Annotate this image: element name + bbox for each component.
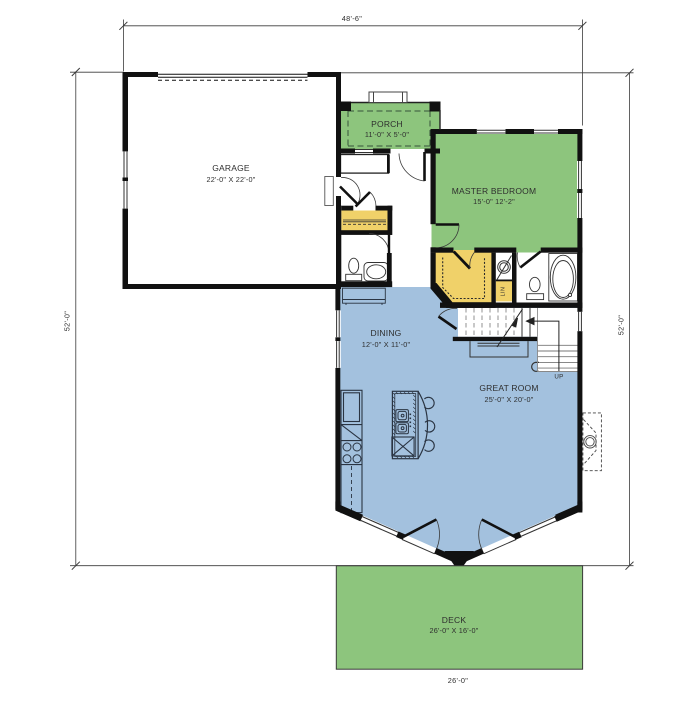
svg-text:LIN: LIN bbox=[501, 286, 507, 296]
svg-text:26'-0" X 16'-0": 26'-0" X 16'-0" bbox=[429, 626, 478, 635]
svg-text:22'-0" X 22'-0": 22'-0" X 22'-0" bbox=[206, 175, 255, 184]
svg-text:52'-0": 52'-0" bbox=[63, 311, 72, 331]
svg-text:UP: UP bbox=[554, 374, 563, 381]
svg-text:15'-0" 12'-2": 15'-0" 12'-2" bbox=[473, 197, 515, 206]
svg-text:26'-0": 26'-0" bbox=[448, 676, 468, 685]
svg-text:48'-6": 48'-6" bbox=[342, 14, 362, 23]
svg-text:DINING: DINING bbox=[371, 328, 402, 338]
svg-text:52'-0": 52'-0" bbox=[617, 315, 626, 335]
svg-text:12'-0" X 11'-0": 12'-0" X 11'-0" bbox=[362, 340, 411, 349]
svg-text:DECK: DECK bbox=[442, 615, 467, 625]
svg-text:11'-0" X 5'-0": 11'-0" X 5'-0" bbox=[365, 130, 410, 139]
svg-text:MASTER BEDROOM: MASTER BEDROOM bbox=[452, 186, 537, 196]
svg-text:GREAT ROOM: GREAT ROOM bbox=[479, 383, 538, 393]
svg-text:GARAGE: GARAGE bbox=[212, 163, 250, 173]
svg-text:PORCH: PORCH bbox=[371, 119, 403, 129]
svg-text:25'-0" X 20'-0": 25'-0" X 20'-0" bbox=[484, 395, 533, 404]
